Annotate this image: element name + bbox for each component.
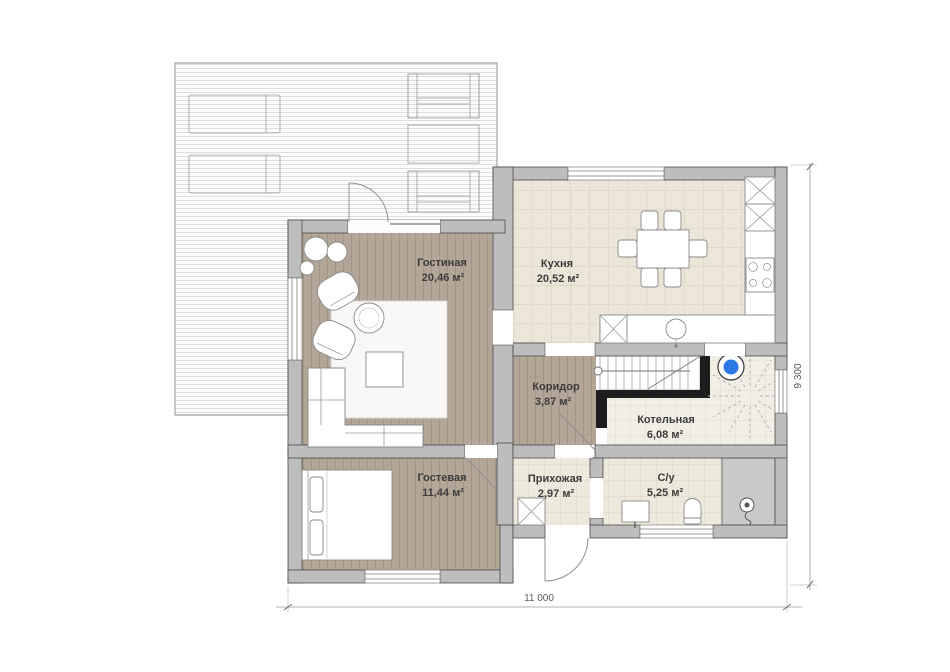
chair <box>664 211 681 230</box>
entry-door <box>545 538 588 581</box>
stair-wall <box>596 398 607 428</box>
hall-furniture <box>518 498 545 525</box>
room-area-corridor: 3,87 м² <box>535 396 572 408</box>
room-label-bath: С/у <box>657 472 675 484</box>
chair <box>688 240 707 257</box>
coffee-table-square <box>366 352 403 387</box>
boiler-icon-core <box>724 360 739 375</box>
room-label-boiler: Котельная <box>637 414 695 426</box>
room-label-living: Гостиная <box>417 257 467 269</box>
shower-zone <box>722 458 775 525</box>
room-area-living: 20,46 м² <box>422 272 465 284</box>
room-area-boiler: 6,08 м² <box>647 429 684 441</box>
stair-wall <box>596 390 710 398</box>
toilet-icon <box>684 499 701 525</box>
room-area-kitchen: 20,52 м² <box>537 273 580 285</box>
room-label-kitchen: Кухня <box>541 258 573 270</box>
base-cabinet-x-icon <box>600 315 627 343</box>
dimension-width: 11 000 <box>524 593 554 604</box>
window-guest <box>365 570 440 583</box>
stair-start-post <box>594 367 602 375</box>
room-area-bath: 5,25 м² <box>647 487 684 499</box>
chair <box>618 240 637 257</box>
coffee-table-round <box>354 303 384 333</box>
floor-plan-drawing: Гостиная 20,46 м² Кухня 20,52 м² Коридор… <box>0 0 950 672</box>
floor-plan-page: Гостиная 20,46 м² Кухня 20,52 м² Коридор… <box>0 0 950 672</box>
window-living <box>288 278 302 360</box>
guest-furniture <box>302 470 392 560</box>
dining-table <box>637 230 689 268</box>
room-label-corridor: Коридор <box>532 381 580 393</box>
stove-icon <box>746 258 774 292</box>
room-label-guest: Гостевая <box>417 472 466 484</box>
chair <box>664 268 681 287</box>
wardrobe-x-icon <box>518 498 545 525</box>
window-kitchen <box>568 167 664 180</box>
room-area-guest: 11,44 м² <box>422 487 464 499</box>
chair <box>641 268 658 287</box>
dimension-depth: 9 300 <box>793 363 804 388</box>
room-area-hall: 2,97 м² <box>538 488 575 500</box>
chair <box>641 211 658 230</box>
window-bath <box>640 525 713 538</box>
room-label-hall: Прихожая <box>528 473 582 485</box>
tall-cabinet-x-icon <box>745 177 775 231</box>
bed <box>302 470 392 560</box>
window-boiler <box>775 370 787 413</box>
